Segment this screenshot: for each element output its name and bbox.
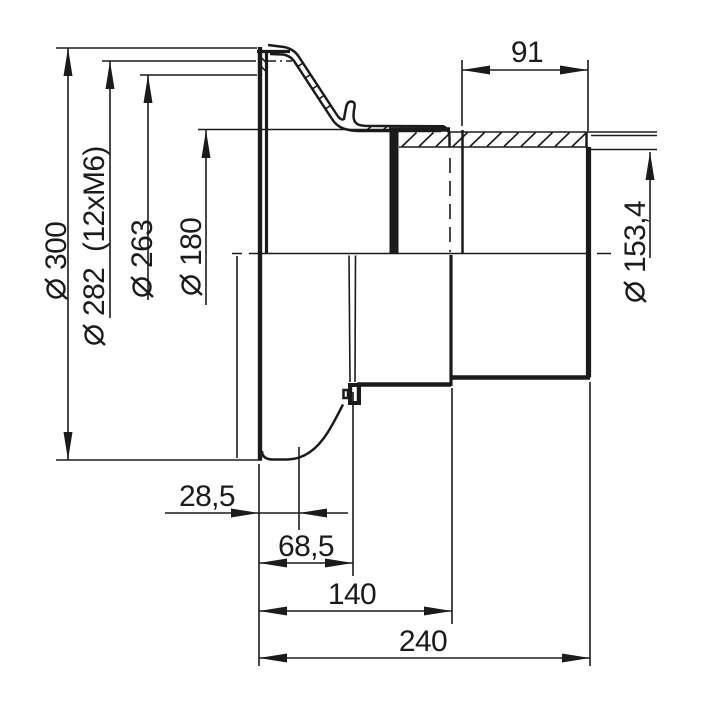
dim-label-dia-263: 263 <box>126 220 159 297</box>
arrowhead <box>259 607 287 616</box>
dim-label-len-28-5: 28,5 <box>179 480 235 513</box>
dim-label-len-240: 240 <box>399 625 447 658</box>
diameter-icon <box>180 275 202 295</box>
dim-note: (12xM6) <box>78 146 111 252</box>
arrowhead <box>202 130 211 158</box>
diameter-icon <box>624 282 646 302</box>
arrowhead <box>144 75 153 103</box>
dim-label-dia-180: 180 <box>175 218 208 295</box>
arrowhead <box>424 607 452 616</box>
dimension-dia-153-4: 153,4 <box>619 152 655 302</box>
arrowhead <box>560 66 588 75</box>
bell-curve <box>262 405 343 460</box>
drum-band-hatch <box>402 133 586 147</box>
dim-text: 180 <box>175 218 208 266</box>
dim-text: 282 <box>78 268 111 316</box>
arrowhead <box>231 509 259 518</box>
diameter-icon <box>45 279 67 299</box>
arrowhead <box>646 152 655 180</box>
part-outline <box>237 45 657 460</box>
arrowhead <box>299 509 327 518</box>
dim-text: 263 <box>126 220 159 268</box>
funnel-neck-line-1 <box>349 256 350 383</box>
dimension-dia-180: 180 <box>175 130 389 306</box>
dimension-dia-282: 282 (12xM6) <box>78 61 246 345</box>
arrowhead <box>462 66 490 75</box>
diameter-icon <box>131 277 153 297</box>
arrowhead <box>64 48 73 76</box>
technical-drawing: 300 282 (12xM6) 263 180 <box>0 0 718 718</box>
sheet-slope-hatch <box>297 63 330 109</box>
arrowhead <box>562 654 590 663</box>
arrowhead <box>106 61 115 89</box>
dimension-len-68-5: 68,5 <box>259 392 353 576</box>
dim-label-len-68-5: 68,5 <box>278 530 334 563</box>
funnel-neck-line-2 <box>355 256 356 383</box>
end-wall-section <box>390 132 399 255</box>
dim-label-len-91: 91 <box>511 36 543 69</box>
diameter-icon <box>83 325 105 345</box>
dimension-len-140: 140 <box>259 388 452 624</box>
arrowhead <box>259 654 287 663</box>
centerlines <box>232 61 611 254</box>
clamp-screw <box>344 390 349 398</box>
dim-label-dia-282: 282 (12xM6) <box>78 146 111 345</box>
arrowhead <box>64 432 73 460</box>
dim-label-dia-153-4: 153,4 <box>619 201 652 302</box>
drawing-canvas: 300 282 (12xM6) 263 180 <box>0 0 718 718</box>
dim-label-len-140: 140 <box>328 578 376 611</box>
dimension-len-91: 91 <box>462 36 588 131</box>
clamp-right-bar <box>357 383 361 405</box>
sheet-cover-inner <box>270 54 441 131</box>
dim-text: 300 <box>40 222 73 270</box>
dim-text: 153,4 <box>619 201 652 273</box>
dimension-len-240: 240 <box>259 382 590 666</box>
